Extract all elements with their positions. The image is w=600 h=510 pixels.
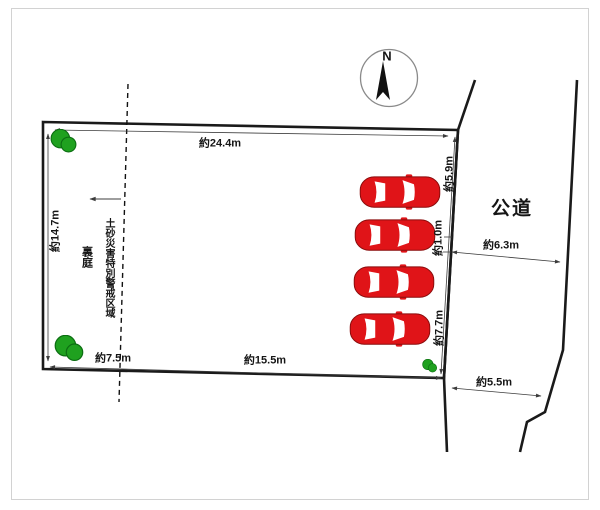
car-icon <box>354 264 434 299</box>
bottom-dimension-line <box>50 367 441 378</box>
compass-north-label: N <box>382 50 391 63</box>
road-width-arrow-lower <box>452 388 541 396</box>
dimension-label-left: 約14.7m <box>51 210 62 252</box>
hazard-zone-label: 土砂災害特別警戒区域 <box>103 218 113 318</box>
tree-icon <box>423 359 437 372</box>
road-width-label-upper: 約6.3m <box>483 241 519 252</box>
public-road-label: 公道 <box>491 200 533 219</box>
dimension-label-bottom: 約15.5m <box>244 356 286 367</box>
tree-icon <box>55 335 82 360</box>
dimension-label-right-middle: 約1.0m <box>434 220 445 256</box>
dimension-label-bottom-left: 約7.5m <box>95 354 131 365</box>
dimension-label-right-lower: 約7.7m <box>435 310 446 346</box>
car-icon <box>360 174 440 209</box>
road-width-label-lower: 約5.5m <box>476 378 512 389</box>
road-left-edge <box>444 80 475 452</box>
road-right-edge <box>520 80 577 452</box>
car-icon <box>350 311 430 346</box>
site-plan-canvas: N 約24.4m 約14.7m 裏庭 土砂災害特別警戒区域 約7.5m 約15.… <box>0 0 600 510</box>
dimension-label-top: 約24.4m <box>199 139 241 150</box>
top-dimension-line <box>55 130 448 136</box>
dimension-label-right-upper: 約5.9m <box>445 156 456 192</box>
car-icon <box>355 217 435 252</box>
tree-icon <box>51 129 76 152</box>
road-width-arrow-upper <box>452 252 560 262</box>
backyard-label: 裏庭 <box>81 246 92 268</box>
